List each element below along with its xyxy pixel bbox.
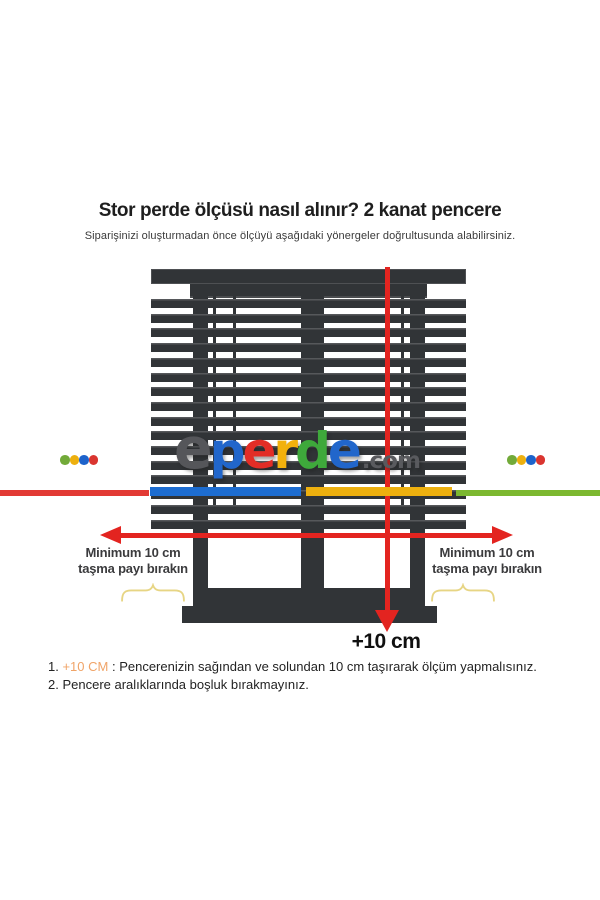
blind-slat <box>151 387 466 396</box>
note-line: Minimum 10 cm <box>58 545 208 561</box>
brand-line-segment <box>0 490 149 496</box>
blind-slat <box>151 328 466 337</box>
footnote-1: 1. +10 CM : Pencerenizin sağından ve sol… <box>48 658 568 676</box>
note-line: Minimum 10 cm <box>412 545 562 561</box>
blind-slat <box>151 314 466 323</box>
decorative-dot <box>536 455 546 465</box>
footnotes: 1. +10 CM : Pencerenizin sağından ve sol… <box>48 658 568 694</box>
note-line: taşma payı bırakın <box>58 561 208 577</box>
blind-slat <box>151 520 466 529</box>
brand-line-segment <box>150 487 301 496</box>
horizontal-measure-line <box>120 533 493 538</box>
logo-letter: e <box>328 425 359 477</box>
logo-suffix: .com <box>362 448 420 474</box>
logo-letter: e <box>174 423 210 475</box>
plus-10cm-label: +10 cm <box>330 630 442 654</box>
blind-slat <box>151 402 466 411</box>
logo-letter: d <box>295 425 328 477</box>
decorative-dots-left <box>60 455 98 465</box>
footnote-text: : Pencerenizin sağından ve solundan 10 c… <box>108 659 537 674</box>
footnote-text: Pencere aralıklarında boşluk bırakmayını… <box>62 677 308 692</box>
blind-slat <box>151 373 466 382</box>
decorative-dot <box>89 455 99 465</box>
right-margin-note: Minimum 10 cm taşma payı bırakın <box>412 545 562 577</box>
brand-line-segment <box>306 487 452 496</box>
brand-line-segment <box>456 490 600 496</box>
left-margin-note: Minimum 10 cm taşma payı bırakın <box>58 545 208 577</box>
page-subtitle: Siparişinizi oluşturmadan önce ölçüyü aş… <box>0 230 600 242</box>
decorative-dot <box>507 455 517 465</box>
note-line: taşma payı bırakın <box>412 561 562 577</box>
blind-slat <box>151 299 466 308</box>
page-title: Stor perde ölçüsü nasıl alınır? 2 kanat … <box>0 200 600 222</box>
down-arrowhead-icon <box>375 610 399 632</box>
blind-headrail <box>151 269 466 284</box>
logo-wordmark: eperde <box>174 423 359 477</box>
logo-letter: p <box>210 425 243 477</box>
logo-letter: e <box>242 425 273 477</box>
footnote-highlight: +10 CM <box>62 659 108 674</box>
logo-letter: r <box>273 425 295 477</box>
footnote-2: 2. Pencere aralıklarında boşluk bırakmay… <box>48 676 568 694</box>
blind-slat <box>151 505 466 514</box>
blind-slat <box>151 358 466 367</box>
decorative-dot <box>60 455 70 465</box>
blind-slat <box>151 343 466 352</box>
decorative-dot <box>70 455 80 465</box>
decorative-dot <box>79 455 89 465</box>
window-bottom-rail <box>193 588 425 607</box>
left-brace-icon <box>120 583 186 603</box>
right-arrowhead-icon <box>492 526 513 544</box>
decorative-dots-right <box>507 455 545 465</box>
eperde-logo: eperde .com <box>174 423 420 477</box>
decorative-dot <box>526 455 536 465</box>
footnote-number: 2. <box>48 677 62 692</box>
decorative-dot <box>517 455 527 465</box>
right-brace-icon <box>430 583 496 603</box>
left-arrowhead-icon <box>100 526 121 544</box>
footnote-number: 1. <box>48 659 62 674</box>
product-instruction-image: Stor perde ölçüsü nasıl alınır? 2 kanat … <box>0 0 600 900</box>
